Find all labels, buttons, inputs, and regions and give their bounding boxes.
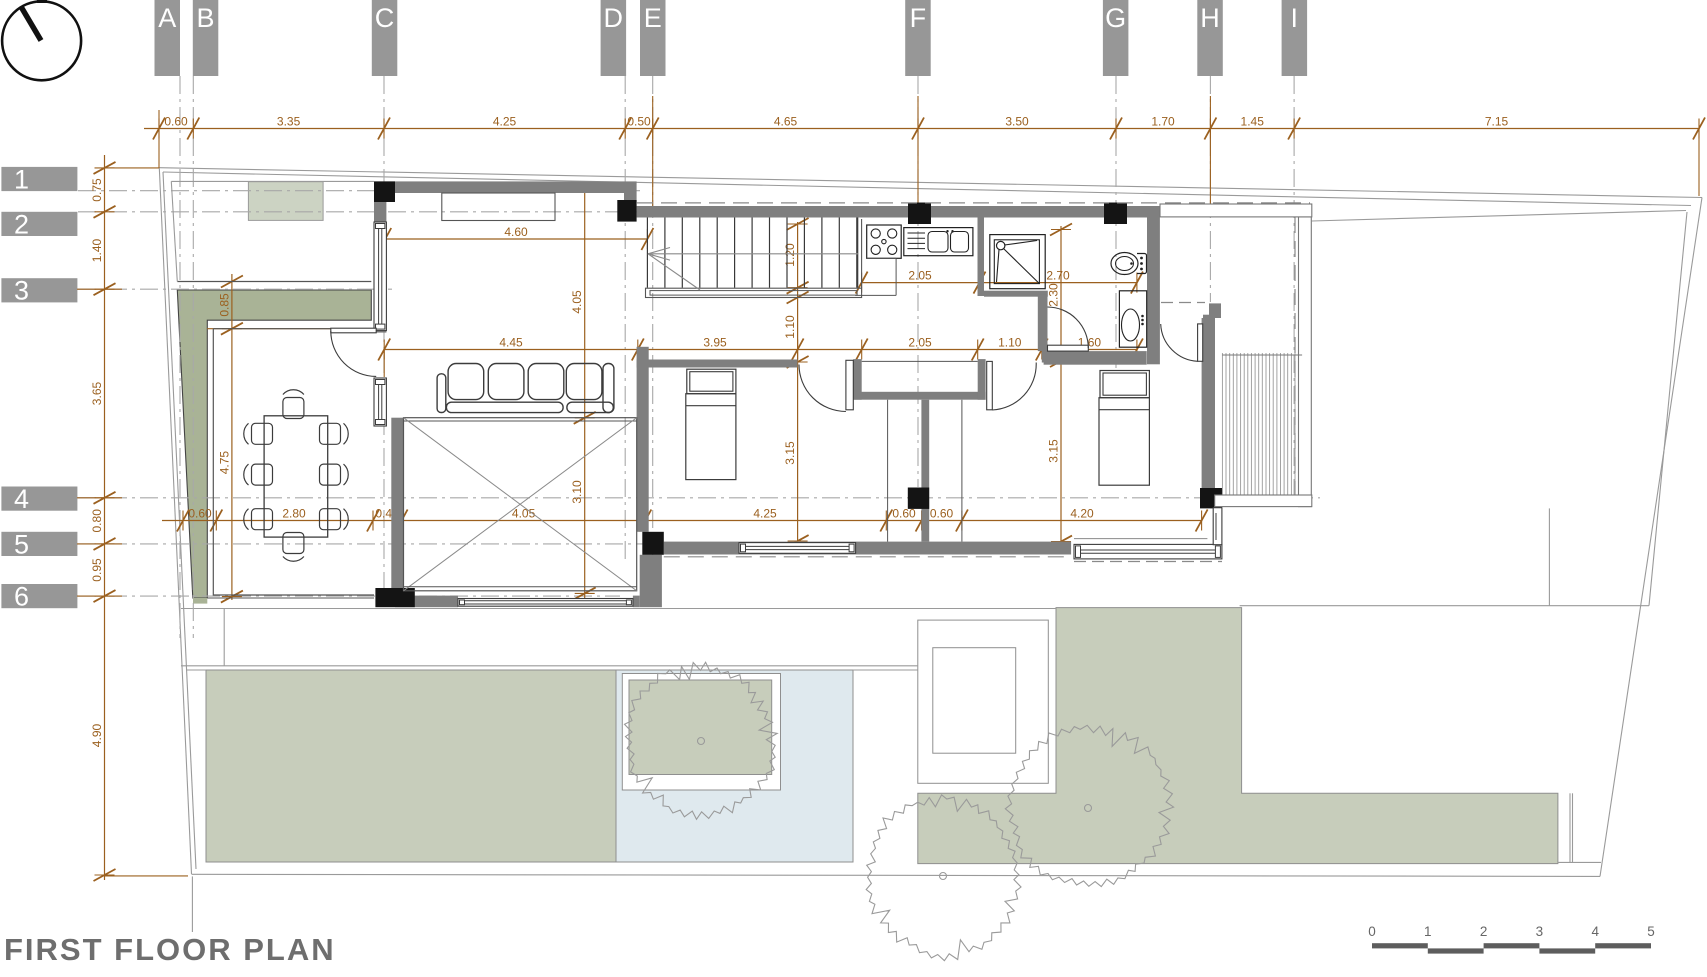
svg-text:I: I [1291,3,1299,33]
svg-text:5: 5 [14,529,29,559]
svg-text:0.75: 0.75 [90,178,104,202]
svg-text:0.60: 0.60 [188,507,212,521]
svg-text:6: 6 [14,582,29,612]
svg-text:F: F [910,3,927,33]
svg-text:H: H [1200,3,1220,33]
svg-text:4: 4 [14,484,29,514]
svg-text:2.05: 2.05 [908,269,932,283]
svg-text:1.20: 1.20 [783,243,797,267]
svg-text:D: D [604,3,624,33]
svg-text:C: C [375,3,395,33]
svg-text:0.60: 0.60 [164,115,188,129]
svg-text:B: B [196,3,214,33]
svg-text:3.65: 3.65 [90,381,104,405]
svg-text:2.05: 2.05 [908,336,932,350]
svg-text:0.95: 0.95 [90,558,104,582]
svg-text:4.60: 4.60 [504,225,528,239]
svg-text:2: 2 [14,209,29,239]
svg-text:4: 4 [1591,924,1599,939]
svg-text:1.40: 1.40 [90,238,104,262]
svg-text:3.35: 3.35 [277,115,301,129]
svg-text:4.45: 4.45 [499,336,523,350]
svg-text:3.50: 3.50 [1005,115,1029,129]
svg-text:0.85: 0.85 [217,293,231,317]
svg-text:5: 5 [1647,924,1655,939]
svg-text:7.15: 7.15 [1485,115,1509,129]
svg-text:3.95: 3.95 [703,336,727,350]
svg-text:1.70: 1.70 [1151,115,1175,129]
svg-text:4.05: 4.05 [570,290,584,314]
svg-text:A: A [158,3,176,33]
svg-text:4.75: 4.75 [217,451,231,475]
svg-text:FIRST FLOOR PLAN: FIRST FLOOR PLAN [4,932,336,967]
svg-text:0: 0 [1368,924,1376,939]
svg-text:1.45: 1.45 [1241,115,1265,129]
svg-text:4.25: 4.25 [753,507,777,521]
svg-text:4.20: 4.20 [1070,507,1094,521]
svg-text:0.50: 0.50 [627,115,651,129]
svg-text:3: 3 [14,276,29,306]
svg-text:2.80: 2.80 [282,507,306,521]
svg-text:G: G [1105,3,1126,33]
svg-text:2: 2 [1480,924,1488,939]
svg-text:3.10: 3.10 [570,480,584,504]
svg-text:1.10: 1.10 [783,315,797,339]
svg-text:1: 1 [14,164,29,194]
svg-text:3.15: 3.15 [783,441,797,465]
svg-text:2.70: 2.70 [1046,269,1070,283]
svg-text:1.10: 1.10 [998,336,1022,350]
svg-text:4.25: 4.25 [493,115,517,129]
svg-text:1: 1 [1424,924,1432,939]
svg-text:E: E [644,3,662,33]
svg-text:0.80: 0.80 [90,509,104,533]
svg-text:4.90: 4.90 [90,723,104,747]
svg-text:4.65: 4.65 [774,115,798,129]
svg-text:2.30: 2.30 [1047,283,1061,307]
svg-text:3.15: 3.15 [1047,439,1061,463]
svg-text:3: 3 [1536,924,1544,939]
svg-text:0.60: 0.60 [930,507,954,521]
